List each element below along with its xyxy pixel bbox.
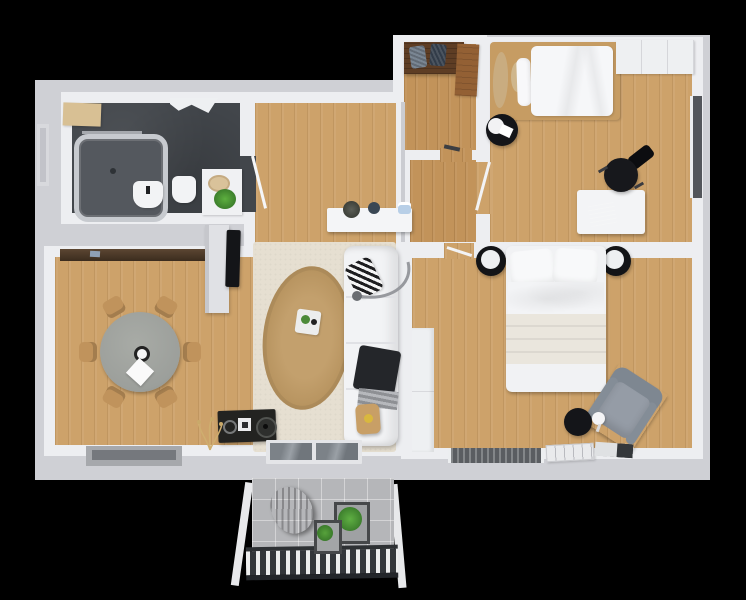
bedroom1-wardrobe — [616, 40, 694, 74]
tray-plant — [301, 315, 310, 324]
dried-plant — [196, 414, 224, 452]
nightstand-left-top — [481, 250, 500, 269]
radiator — [448, 448, 544, 463]
bed1-pillow-white — [516, 58, 532, 106]
bidet — [172, 176, 196, 203]
tv — [225, 230, 240, 287]
towel-rail — [82, 131, 142, 134]
bathroom-window-glass — [40, 128, 46, 182]
office-chair-seat — [604, 158, 638, 192]
speaker-dot — [263, 424, 268, 429]
corridor-floor — [410, 160, 476, 242]
planter-small-plant — [317, 525, 333, 541]
bed1-duvet — [531, 46, 613, 116]
stool-lemon — [364, 414, 373, 423]
dining-wall-shelf — [60, 249, 205, 261]
arc-lamp — [344, 256, 414, 308]
shelf-decor — [90, 251, 100, 258]
side-table-bedroom2 — [564, 408, 592, 436]
tray-decor — [311, 319, 317, 325]
dining-window-glass — [92, 450, 176, 460]
sofa-seam — [346, 342, 396, 344]
cabinet-frame-inner — [242, 422, 248, 428]
bathtub — [74, 134, 168, 222]
bedroom1-window — [692, 96, 702, 198]
cabinet-knob — [223, 420, 237, 434]
open-wardrobe-door — [455, 43, 480, 96]
magazine-stack — [546, 443, 595, 462]
toilet-flush — [146, 186, 150, 194]
balcony-door-pane-right — [316, 443, 358, 460]
bath-mat — [63, 102, 102, 126]
magazine-dark — [595, 442, 634, 459]
folded-coats-gray — [409, 45, 428, 69]
bedroom1-window-sill — [690, 96, 693, 198]
bed2-folded-blanket — [506, 314, 606, 364]
floor-plan — [0, 0, 746, 600]
console-vase — [368, 202, 380, 214]
dining-chair — [79, 342, 97, 362]
vanity-plant — [214, 189, 236, 209]
nightstand-right-top — [605, 250, 624, 269]
balcony-door-pane-left — [270, 443, 312, 460]
console-cup — [398, 202, 411, 214]
bed2-pillow-right — [552, 247, 599, 286]
folded-coats-navy — [429, 43, 447, 66]
console-pot-plant — [343, 201, 360, 218]
bed2-duvet — [508, 282, 604, 316]
dining-chair — [183, 342, 201, 362]
bedroom2-wardrobe — [412, 328, 434, 452]
bathtub-drain — [110, 168, 116, 174]
